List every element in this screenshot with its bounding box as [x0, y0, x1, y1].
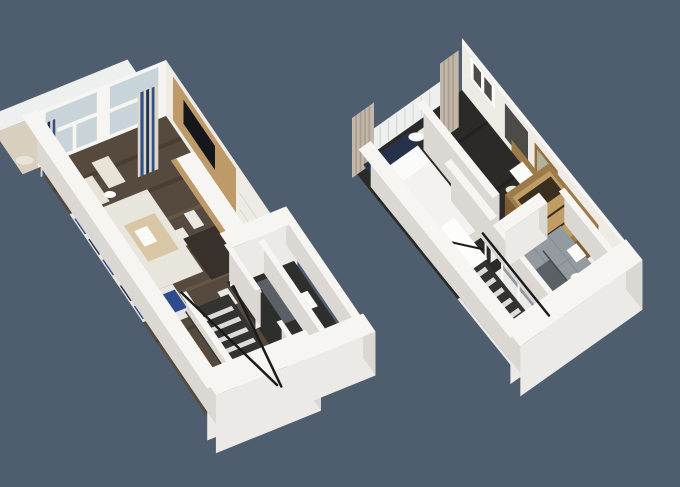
railing-slat	[404, 108, 405, 129]
loft-suite-floorplan-render	[0, 0, 680, 487]
railing-slat	[396, 114, 397, 135]
window-column	[97, 83, 110, 144]
balcony-table	[16, 156, 34, 165]
curtain-stripe	[140, 91, 143, 176]
curtain-stripe	[152, 87, 155, 172]
railing-slat	[413, 102, 414, 123]
curtain-fold	[448, 57, 450, 135]
railing-slat	[388, 120, 389, 141]
railing-slat	[380, 126, 381, 147]
lower-level-floorplan	[0, 60, 375, 454]
side-table	[104, 191, 116, 198]
floorplan-page	[0, 0, 680, 487]
side-table	[408, 132, 424, 141]
upper-level-floorplan	[352, 38, 642, 396]
curtain-fold	[364, 108, 366, 169]
curtain-fold	[360, 111, 362, 172]
curtain-stripe	[146, 89, 149, 174]
curtain-fold	[452, 54, 454, 132]
curtain-fold	[355, 115, 357, 176]
